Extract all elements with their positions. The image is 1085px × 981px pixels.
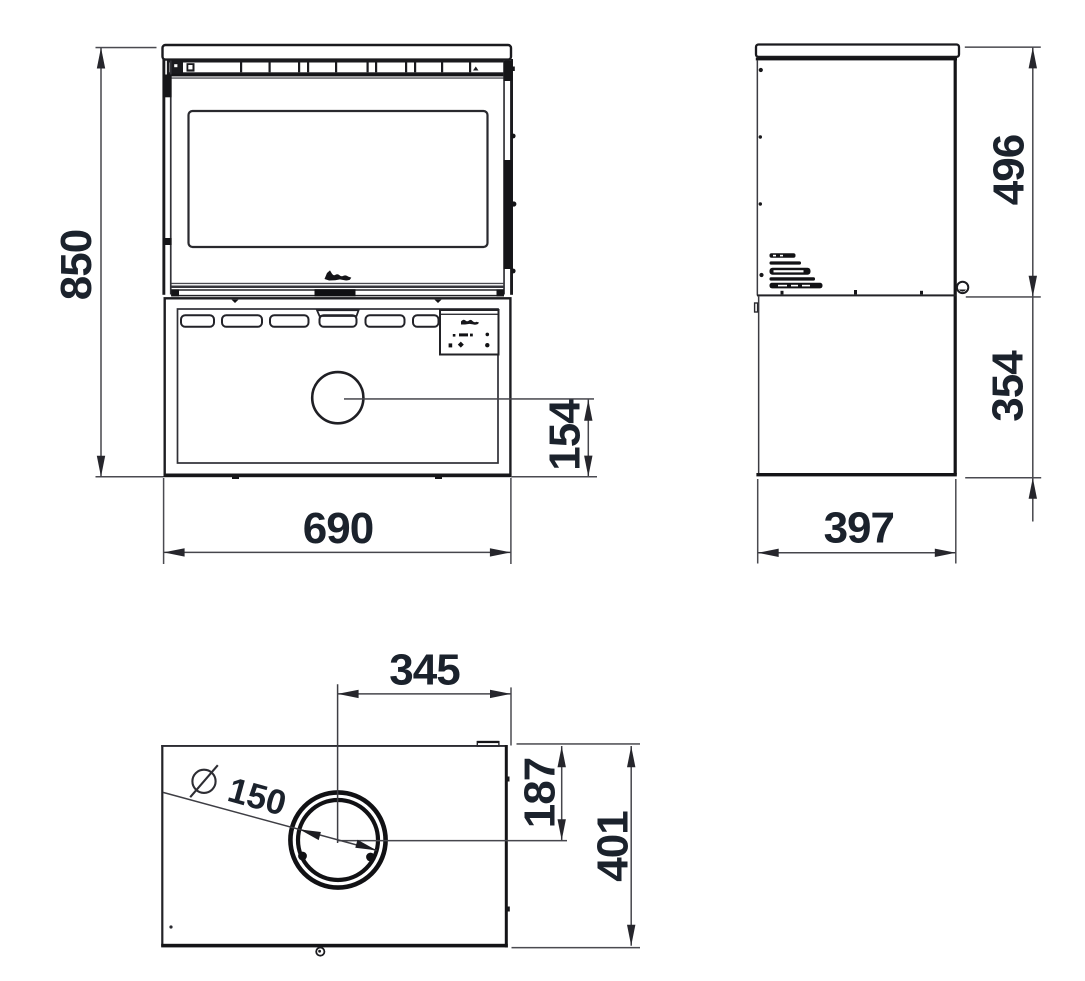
svg-text:850: 850 <box>52 230 101 300</box>
svg-text:187: 187 <box>516 758 565 828</box>
svg-text:354: 354 <box>984 350 1033 422</box>
svg-text:154: 154 <box>541 399 590 471</box>
svg-text:496: 496 <box>985 135 1034 205</box>
svg-text:401: 401 <box>589 811 638 882</box>
svg-text:345: 345 <box>389 645 460 694</box>
svg-text:397: 397 <box>824 504 894 553</box>
svg-text:690: 690 <box>303 504 373 553</box>
